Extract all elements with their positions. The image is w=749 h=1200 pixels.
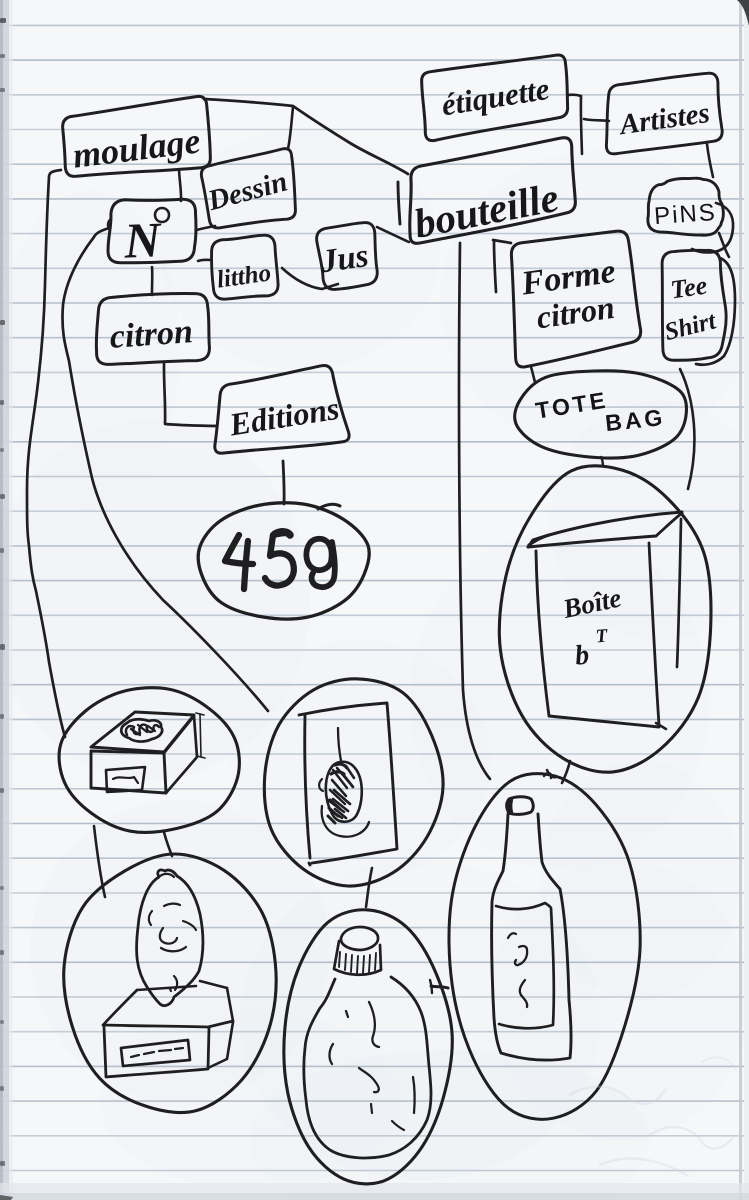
svg-text:citron: citron bbox=[109, 313, 195, 356]
svg-text:Tee: Tee bbox=[669, 271, 709, 305]
svg-text:Jus: Jus bbox=[317, 238, 370, 280]
svg-text:PiNS: PiNS bbox=[653, 199, 717, 230]
